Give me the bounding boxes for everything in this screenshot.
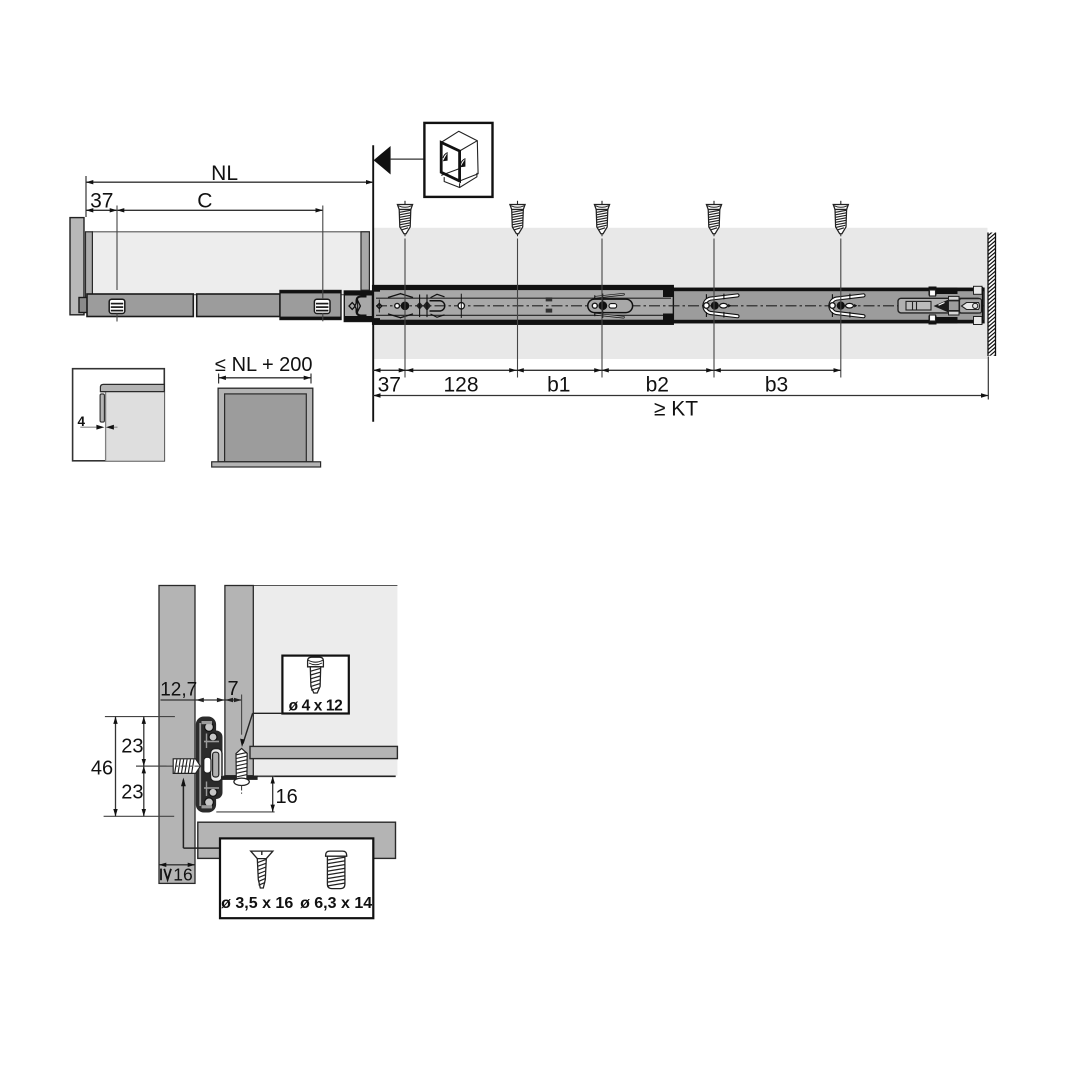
svg-text:23: 23 [121,781,143,803]
svg-text:ø 6,3 x 14: ø 6,3 x 14 [300,895,372,912]
svg-text:4: 4 [78,414,86,429]
svg-text:b1: b1 [547,374,570,397]
svg-text:7: 7 [227,678,238,700]
svg-text:46: 46 [91,757,113,779]
svg-text:12,7: 12,7 [160,679,197,700]
svg-text:128: 128 [443,374,478,397]
svg-text:16: 16 [173,865,192,885]
svg-text:37: 37 [378,374,401,397]
svg-text:b2: b2 [646,374,669,397]
svg-text:C: C [197,190,212,213]
svg-text:16: 16 [275,786,297,808]
svg-text:NL: NL [211,162,238,185]
svg-text:ø 4 x 12: ø 4 x 12 [289,698,343,715]
svg-text:≤ NL + 200: ≤ NL + 200 [215,354,313,376]
svg-text:b3: b3 [765,374,788,397]
svg-text:23: 23 [121,735,143,757]
svg-text:≥ KT: ≥ KT [654,398,698,421]
svg-text:37: 37 [90,190,113,213]
svg-text:ø 3,5 x 16: ø 3,5 x 16 [221,895,293,912]
